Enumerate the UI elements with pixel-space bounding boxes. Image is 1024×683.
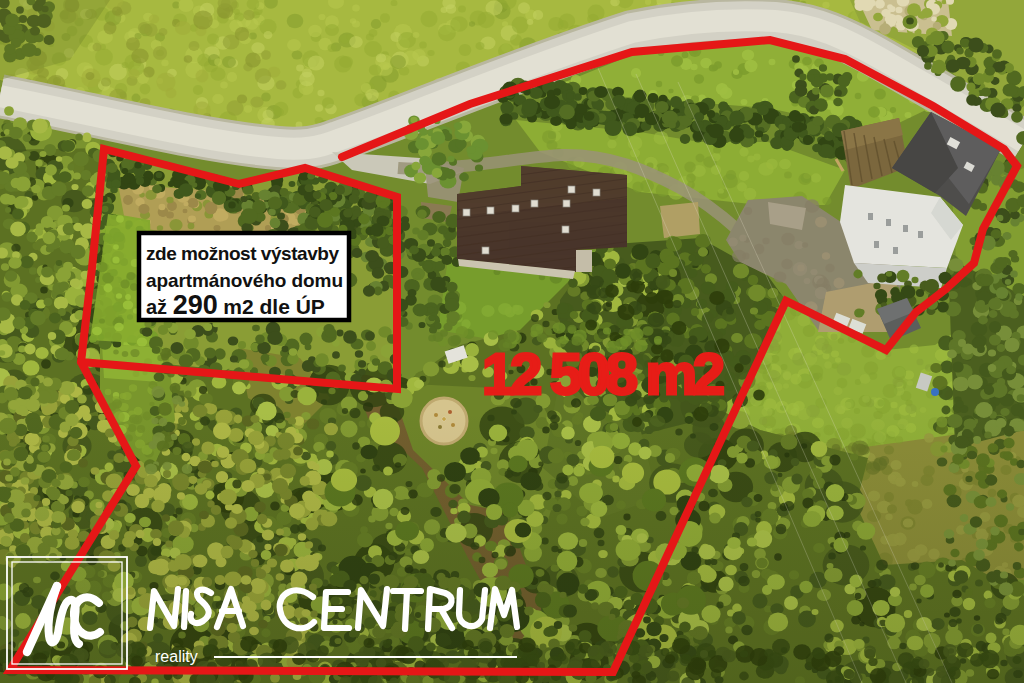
svg-text:12 508 m2: 12 508 m2 <box>482 341 725 406</box>
svg-text:apartmánového domu: apartmánového domu <box>146 270 343 291</box>
svg-text:reality: reality <box>155 648 198 665</box>
svg-text:až 290 m2 dle ÚP: až 290 m2 dle ÚP <box>146 290 325 320</box>
svg-text:zde možnost výstavby: zde možnost výstavby <box>146 243 339 264</box>
